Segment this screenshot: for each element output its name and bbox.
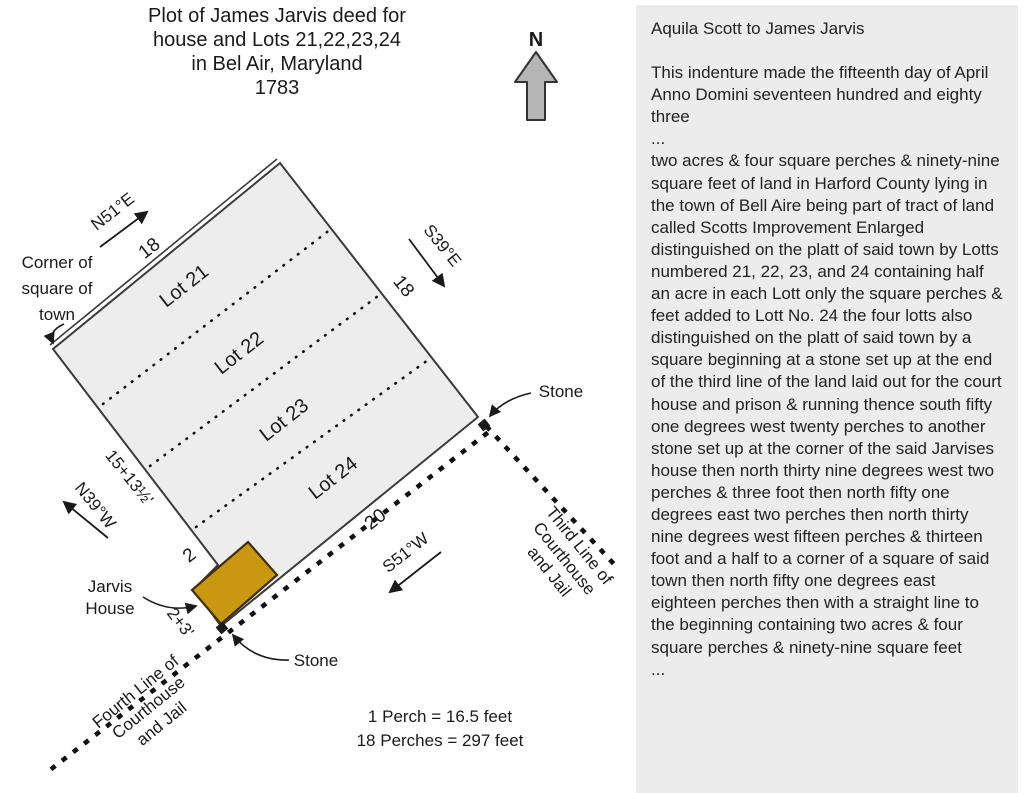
scale-line-1: 1 Perch = 16.5 feet — [368, 707, 512, 726]
jarvis-house-leader-arrow — [143, 597, 196, 608]
bearing-bottom-label: S51°W — [379, 529, 433, 577]
deed-heading: Aquila Scott to James Jarvis — [651, 18, 1003, 40]
deed-ellipsis-1: ... — [651, 128, 1003, 150]
right-edge-length: 18 — [388, 272, 418, 302]
deed-paragraph-2: two acres & four square perches & ninety… — [651, 150, 1003, 658]
screenshot-root: N Plot of James Jarvis deed for house an… — [0, 0, 1024, 793]
stone-right-leader-arrow — [490, 393, 531, 416]
plot-diagram: N Plot of James Jarvis deed for house an… — [0, 0, 636, 793]
stone-bottom-label: Stone — [294, 651, 338, 670]
title-line-1: Plot of James Jarvis deed for — [148, 5, 406, 27]
bearing-left-label: N39°W — [71, 479, 120, 533]
jarvis-house-label-line-2: House — [85, 599, 134, 618]
deed-paragraph-1: This indenture made the fifteenth day of… — [651, 62, 1003, 128]
jarvis-house-label-line-1: Jarvis — [88, 577, 132, 596]
bearing-top-label: N51°E — [87, 189, 138, 234]
title-line-4: 1783 — [255, 77, 300, 99]
corner-leader-arrow — [52, 324, 64, 343]
deed-ellipsis-2: ... — [651, 659, 1003, 681]
scale-line-2: 18 Perches = 297 feet — [357, 731, 524, 750]
deed-text-panel: Aquila Scott to James Jarvis This indent… — [636, 5, 1018, 793]
corner-label-line-2: square of — [22, 279, 93, 298]
north-label: N — [529, 29, 543, 51]
north-arrow — [515, 52, 557, 120]
stone-right-label: Stone — [539, 382, 583, 401]
stone-bottom-leader-arrow — [233, 635, 289, 660]
corner-label-line-1: Corner of — [22, 253, 93, 272]
title-line-2: house and Lots 21,22,23,24 — [153, 29, 401, 51]
corner-label-line-3: town — [39, 305, 75, 324]
title-line-3: in Bel Air, Maryland — [191, 53, 362, 75]
jog-length-label: 2 — [179, 544, 200, 567]
house-side-length-label: 2+3' — [163, 604, 198, 641]
stone-marker-house — [216, 622, 229, 635]
spacer — [651, 40, 1003, 62]
top-edge-length: 18 — [135, 234, 165, 264]
